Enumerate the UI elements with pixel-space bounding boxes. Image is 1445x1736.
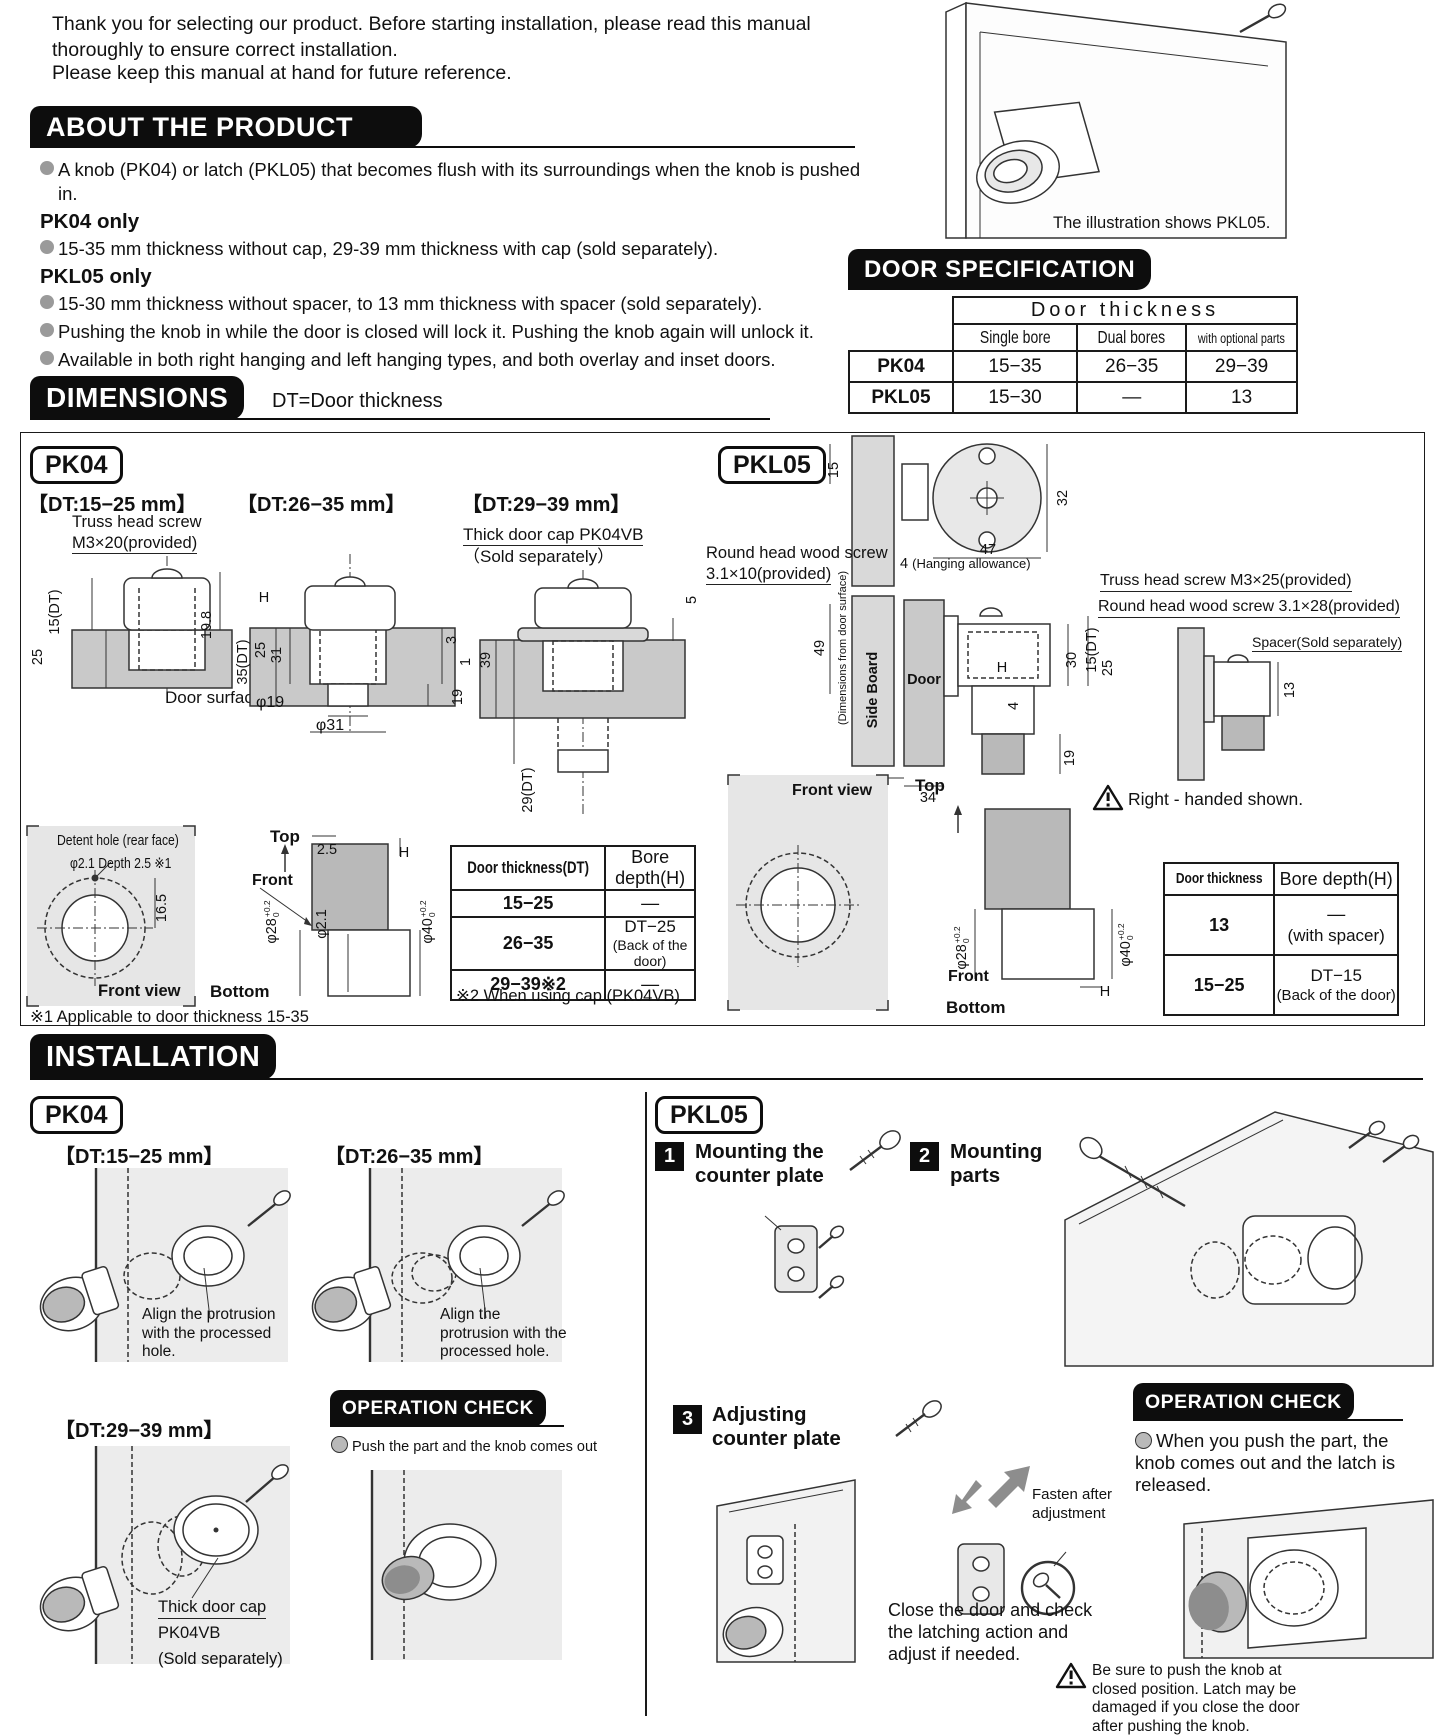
bore-dt-cell: 13: [1164, 895, 1274, 955]
spec-col-label: Dual bores: [1098, 327, 1166, 348]
install-cap-line1: Thick door cap: [158, 1598, 266, 1619]
bullet-text: Pushing the knob in while the door is cl…: [58, 320, 814, 344]
dim-phi28: φ28+0.20: [263, 900, 281, 943]
side-board-label: Side Board: [865, 652, 881, 729]
thick-cap-line2: （Sold separately）: [463, 547, 614, 566]
dim-19: 19: [450, 689, 466, 705]
bore-dt-cell: 26−35: [451, 917, 605, 970]
pk04-bore-table: Door thickness(DT) Bore depth(H) 15−25 —…: [450, 845, 696, 1001]
pkl05-top-label: Top: [915, 776, 945, 796]
spec-corner-cell: [849, 297, 953, 324]
illustration-caption: The illustration shows PKL05.: [1053, 214, 1270, 233]
pkl05-bore-table: Door thickness Bore depth(H) 13 —(with s…: [1163, 862, 1399, 1016]
pkl05-front-label: Front: [948, 968, 989, 986]
dim-25: 25: [253, 642, 269, 658]
mounting-parts-drawing: [1035, 1098, 1433, 1366]
step1-title: Mounting the counter plate: [695, 1140, 860, 1188]
dim-phi21: φ2.1: [314, 909, 330, 939]
dim-h: H: [1100, 984, 1110, 1000]
bore-header: Door thickness: [1164, 863, 1274, 895]
bullet-item: Available in both right hanging and left…: [40, 348, 880, 372]
bullet-text: 15-35 mm thickness without cap, 29-39 mm…: [58, 237, 718, 261]
install-cap-line2: PK04VB: [158, 1624, 220, 1643]
spec-col-header: Single bore: [953, 324, 1077, 351]
install-cap-line3: (Sold separately): [158, 1650, 283, 1669]
spec-model-cell: PK04: [849, 351, 953, 382]
note1: ※1 Applicable to door thickness 15-35: [30, 1007, 309, 1027]
dim-13: 13: [1282, 682, 1298, 698]
product-illustration: [900, 0, 1290, 238]
installation-divider: [645, 1092, 647, 1716]
bullet-item: 15-35 mm thickness without cap, 29-39 mm…: [40, 237, 880, 261]
bullet-icon: [40, 323, 54, 337]
bullet-text: A knob (PK04) or latch (PKL05) that beco…: [58, 158, 880, 206]
dims-from-door-surface-label: (Dimensions from door surface): [837, 571, 849, 725]
dim-15dt: 15(DT): [1084, 627, 1100, 672]
dim-2-5: 2.5: [317, 842, 337, 858]
spec-col-label: Single bore: [980, 327, 1051, 348]
step1-number: 1: [655, 1142, 684, 1171]
pkl05-only-heading: PKL05 only: [40, 265, 880, 289]
step2-number: 2: [910, 1142, 939, 1171]
bore-header: Bore depth(H): [605, 846, 695, 890]
counter-plate-drawing: [745, 1210, 863, 1318]
detent-label-line1: Detent hole (rear face): [57, 833, 179, 849]
spec-col-header: Dual bores: [1077, 324, 1186, 351]
dim-25: 25: [30, 649, 46, 665]
bore-header: Bore depth(H): [1274, 863, 1398, 895]
about-product-banner: ABOUT THE PRODUCT: [30, 106, 422, 148]
latch-warning-note: Be sure to push the knob at closed posit…: [1092, 1662, 1318, 1736]
adjust-plate-drawing: [683, 1464, 871, 1662]
dim-15: 15: [826, 462, 842, 478]
align-note-1: Align the protrusion with the processed …: [142, 1306, 292, 1362]
pk04-install-badge: PK04: [30, 1096, 123, 1134]
pkl05-front-view-drawing: [728, 775, 888, 1010]
opcheck-bullet-icon: [1135, 1432, 1152, 1449]
pkl05-install-badge: PKL05: [655, 1096, 763, 1134]
spec-value-cell: 26−35: [1077, 351, 1186, 382]
pk04-dims-badge: PK04: [30, 446, 123, 484]
dt-note: DT=Door thickness: [272, 390, 443, 413]
pkl05-opcheck-banner: OPERATION CHECK: [1133, 1383, 1354, 1421]
hanging-allowance-label: 4 (Hanging allowance): [900, 556, 1031, 572]
pk04-opcheck-banner: OPERATION CHECK: [330, 1390, 546, 1427]
dim-phi31: φ31: [316, 717, 344, 735]
step3-number: 3: [673, 1405, 702, 1434]
pk04-install-dt3: 【DT:29−39 mm】: [55, 1414, 223, 1443]
dim-35dt: 35(DT): [235, 639, 251, 684]
pk04-opcheck-drawing: [330, 1470, 562, 1660]
truss-screw-line2: M3×20(provided): [72, 534, 197, 554]
bore-row: 15−25 DT−15(Back of the door): [1164, 955, 1398, 1015]
spec-value-cell: 15−35: [953, 351, 1077, 382]
dim-29dt: 29(DT): [520, 767, 536, 812]
dim-phi28: φ28+0.20: [953, 926, 971, 969]
bore-value-cell: —: [605, 890, 695, 917]
dim-16-5: 16.5: [154, 894, 170, 922]
pk04-opcheck-rule: [330, 1425, 564, 1427]
intro-note: Please keep this manual at hand for futu…: [52, 62, 852, 85]
door-spec-banner: DOOR SPECIFICATION: [848, 249, 1151, 290]
thick-cap-label: Thick door cap PK04VB （Sold separately）: [463, 524, 643, 568]
about-bullets: A knob (PK04) or latch (PKL05) that beco…: [40, 158, 880, 376]
bullet-item: A knob (PK04) or latch (PKL05) that beco…: [40, 158, 880, 206]
truss-screw-25-label: Truss head screw M3×25(provided): [1100, 572, 1352, 592]
dim-15dt: 15(DT): [47, 589, 63, 634]
close-door-note: Close the door and check the latching ac…: [888, 1600, 1096, 1666]
pkl05-opcheck-rule: [1133, 1419, 1403, 1421]
dimensions-banner: DIMENSIONS: [30, 376, 244, 420]
spec-row-pk04: PK04 15−35 26−35 29−39: [849, 351, 1297, 382]
dim-phi19: φ19: [256, 694, 284, 712]
spec-value-cell: —: [1077, 382, 1186, 413]
thick-cap-line1: Thick door cap PK04VB: [463, 525, 643, 546]
door-label: Door: [907, 672, 941, 688]
dim-25: 25: [1100, 660, 1116, 676]
pk04-opcheck-note: Push the part and the knob comes out: [331, 1436, 597, 1455]
bore-header: Door thickness(DT): [451, 846, 605, 890]
dim-phi40: φ40+0.20: [419, 900, 437, 943]
bore-value-cell: DT−25(Back of the door): [605, 917, 695, 970]
note2: ※2 When using cap (PK04VB): [456, 986, 680, 1006]
wood-screw-28-label: Round head wood screw 3.1×28(provided): [1098, 598, 1400, 618]
pkl05-front-view-label: Front view: [792, 782, 872, 800]
dim-31: 31: [269, 647, 285, 663]
bore-dt-cell: 15−25: [1164, 955, 1274, 1015]
dim-h: H: [399, 845, 409, 861]
pk04-front-label: Front: [252, 872, 293, 890]
spec-value-cell: 13: [1186, 382, 1297, 413]
bore-row: 15−25 —: [451, 890, 695, 917]
opcheck-bullet-icon: [331, 1436, 348, 1453]
pkl05-opcheck-drawing: [1098, 1498, 1433, 1658]
dim-4: 4: [1006, 702, 1022, 710]
bullet-text: Available in both right hanging and left…: [58, 348, 776, 372]
spec-col-header: with optional parts: [1186, 324, 1297, 351]
pkl05-opcheck-note: When you push the part, the knob comes o…: [1135, 1430, 1407, 1497]
spec-model-cell: PKL05: [849, 382, 953, 413]
pk04-only-heading: PK04 only: [40, 210, 880, 234]
pk04-install-dt2: 【DT:26−35 mm】: [325, 1140, 493, 1169]
spec-row-pkl05: PKL05 15−30 — 13: [849, 382, 1297, 413]
pkl05-spacer-drawing: [1170, 628, 1285, 780]
dimensions-rule: [30, 418, 770, 420]
dim-49: 49: [812, 640, 828, 656]
detent-label-line2: φ2.1 Depth 2.5 ※1: [70, 856, 171, 872]
dim-39: 39: [478, 652, 494, 668]
bullet-item: Pushing the knob in while the door is cl…: [40, 320, 880, 344]
bullet-text: 15-30 mm thickness without spacer, to 13…: [58, 292, 762, 316]
spec-group-header: Door thickness: [953, 297, 1297, 324]
right-handed-warning: Right - handed shown.: [1128, 789, 1303, 810]
dim-phi40: φ40+0.20: [1117, 923, 1135, 966]
spec-value-cell: 15−30: [953, 382, 1077, 413]
pk04-install-dt1: 【DT:15−25 mm】: [55, 1140, 223, 1169]
installation-rule: [30, 1078, 1423, 1080]
manual-page: { "intro": { "text1": "Thank you for sel…: [0, 0, 1445, 1732]
bore-value-cell: DT−15(Back of the door): [1274, 955, 1398, 1015]
spec-value-cell: 29−39: [1186, 351, 1297, 382]
pk04-dt2-heading: 【DT:26−35 mm】: [237, 488, 405, 517]
about-rule: [30, 146, 855, 148]
pkl05-bottom-label: Bottom: [946, 998, 1005, 1018]
dim-32: 32: [1055, 490, 1071, 506]
screw-icon: [888, 1396, 946, 1446]
truss-screw-label: Truss head screw M3×20(provided): [72, 512, 202, 553]
bullet-item: 15-30 mm thickness without spacer, to 13…: [40, 292, 880, 316]
dim-30: 30: [1064, 652, 1080, 668]
installation-banner: INSTALLATION: [30, 1034, 276, 1080]
door-spec-table: Door thickness Single bore Dual bores wi…: [848, 296, 1298, 414]
step3-title: Adjusting counter plate: [712, 1403, 877, 1451]
bullet-icon: [40, 240, 54, 254]
wood-screw-line1: Round head wood screw: [706, 544, 888, 562]
dim-19-8: 19.8: [199, 611, 215, 639]
spec-col-label: with optional parts: [1198, 331, 1285, 346]
pk04-dt3-heading: 【DT:29−39 mm】: [462, 488, 630, 517]
wood-screw-10-label: Round head wood screw 3.1×10(provided): [706, 543, 888, 585]
door-surface-label: Door surface: [165, 688, 262, 708]
dim-h: H: [259, 590, 269, 606]
bore-value-cell: —(with spacer): [1274, 895, 1398, 955]
pk04-front-view-label: Front view: [98, 982, 181, 1001]
dim-3: 3: [444, 636, 460, 644]
adjust-arrows-icon: [952, 1456, 1038, 1522]
screw-icon: [838, 1126, 906, 1178]
dim-19: 19: [1062, 750, 1078, 766]
bore-row: 26−35 DT−25(Back of the door): [451, 917, 695, 970]
spec-corner-cell: [849, 324, 953, 351]
dim-5: 5: [684, 596, 700, 604]
wood-screw-line2: 3.1×10(provided): [706, 565, 831, 585]
dim-h: H: [997, 660, 1007, 676]
bullet-icon: [40, 161, 54, 175]
bore-dt-cell: 15−25: [451, 890, 605, 917]
pk04-bottom-label: Bottom: [210, 982, 269, 1002]
pk04-section-dt29-39-drawing: [470, 568, 685, 816]
bore-row: 13 —(with spacer): [1164, 895, 1398, 955]
warning-triangle-icon: [1056, 1662, 1086, 1689]
bullet-icon: [40, 295, 54, 309]
intro-paragraph: Thank you for selecting our product. Bef…: [52, 12, 852, 63]
bullet-icon: [40, 351, 54, 365]
truss-screw-line1: Truss head screw: [72, 513, 202, 531]
align-note-2: Align the protrusion with the processed …: [440, 1306, 570, 1362]
